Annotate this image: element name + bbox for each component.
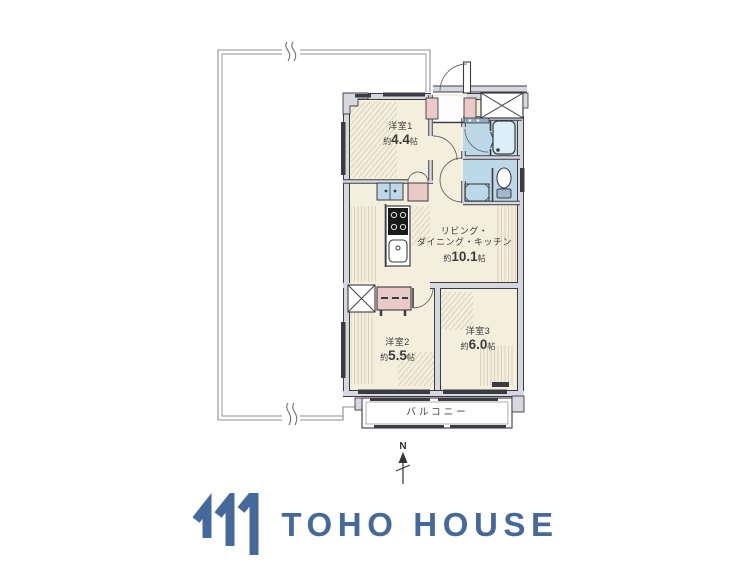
bedroom2-name: 洋室2 <box>355 337 440 348</box>
toilet-bowl-icon <box>497 168 511 188</box>
shaft-x-box <box>481 93 528 118</box>
vanity-cabinet <box>377 183 403 200</box>
brand-logo: TOHO HOUSE <box>0 492 750 558</box>
bedroom2-balcony-window <box>358 390 430 395</box>
shoe-closet-right <box>464 98 476 119</box>
bedroom3-size: 約6.0帖 <box>434 337 522 354</box>
kitchen <box>386 206 410 266</box>
toilet-window <box>520 168 525 192</box>
bedroom2-side-window <box>341 322 346 378</box>
bedroom3-vent <box>492 382 509 387</box>
toilet-tank-icon <box>497 189 511 198</box>
washbasin-counter-icon <box>464 118 489 123</box>
compass-north-arrow <box>396 452 410 484</box>
bedroom1-side-window <box>341 122 346 175</box>
pipe-space-x-box <box>348 285 375 312</box>
bedroom3-name: 洋室3 <box>434 326 522 337</box>
toho-house-logo-icon <box>191 493 265 557</box>
sink-icon <box>389 240 407 262</box>
compass-label: N <box>383 441 423 454</box>
bedroom3-balcony-window <box>443 390 507 395</box>
bedroom1-name: 洋室1 <box>358 121 443 132</box>
bath-drain-icon <box>496 148 500 152</box>
ldk-name-line1: リビング・ <box>412 226 517 237</box>
ldk-label: リビング・ ダイニング・キッチン 約10.1帖 <box>412 226 517 265</box>
bedroom2-label: 洋室2 約5.5帖 <box>355 337 440 365</box>
boundary-break-marks <box>282 42 300 426</box>
bedroom2-size: 約5.5帖 <box>355 348 440 365</box>
ldk-name-line2: ダイニング・キッチン <box>412 237 517 248</box>
bathtub-icon <box>493 121 515 154</box>
balcony-label: バルコニー <box>365 407 510 419</box>
ldk-size: 約10.1帖 <box>412 249 517 266</box>
toilet-room <box>497 168 511 198</box>
bathroom <box>493 121 515 154</box>
floorplan-page: 洋室1 約4.4帖 リビング・ ダイニング・キッチン 約10.1帖 洋室2 約5… <box>0 0 750 563</box>
balcony-end-block <box>512 396 524 412</box>
bedroom3-label: 洋室3 約6.0帖 <box>434 326 522 354</box>
bedroom1-label: 洋室1 約4.4帖 <box>358 121 443 149</box>
bedroom1-top-window <box>383 93 425 97</box>
bedroom1-size: 約4.4帖 <box>358 132 443 149</box>
shoe-closet-left <box>426 98 438 119</box>
toho-house-logo-text: TOHO HOUSE <box>281 506 558 544</box>
bedroom1-vent <box>355 94 371 98</box>
stove-icon <box>388 208 408 235</box>
